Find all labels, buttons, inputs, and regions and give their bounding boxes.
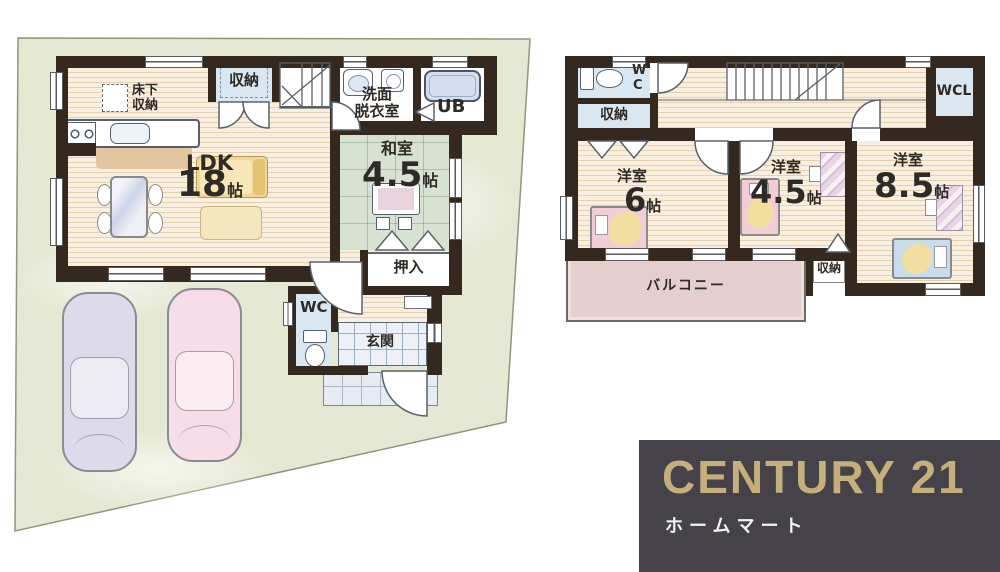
room-label-wcl: WCL [933, 84, 975, 99]
stove-icon [66, 122, 96, 145]
window [925, 283, 961, 296]
door-opening [650, 63, 658, 93]
logo-brand-text: CENTURY 21 [662, 450, 966, 504]
window [427, 323, 442, 343]
room-label-underfloor-2: 収納 [132, 99, 158, 113]
rug-icon [200, 206, 262, 240]
car-icon [62, 292, 137, 472]
room-label-ub: UB [437, 98, 465, 117]
wall-segment [845, 283, 985, 296]
blanket [902, 244, 932, 274]
room-size-washitsu: 4.5帖 [362, 158, 438, 194]
desk-icon [820, 152, 846, 197]
car-hood [179, 425, 230, 453]
window [692, 248, 726, 261]
wall-segment [208, 56, 216, 102]
room-label-storage-1f: 収納 [216, 73, 272, 89]
window [449, 158, 462, 198]
wall-segment [288, 366, 368, 375]
floorplan-canvas: 収納 床下 収納 洗面 脱衣室 UB LDK 18帖 和室 4.5帖 押入 WC… [0, 0, 1000, 572]
entrance-porch [323, 372, 438, 406]
size-unit: 帖 [646, 197, 661, 215]
window [560, 196, 573, 240]
shoe-cabinet-icon [404, 296, 432, 309]
car-hood [74, 434, 125, 463]
door-opening [852, 128, 880, 141]
window [343, 56, 367, 68]
stairs-area-2f [727, 63, 843, 100]
size-number: 8.5 [874, 166, 934, 206]
logo-sub-text: ホームマート [665, 512, 808, 538]
pillow [934, 246, 947, 268]
car-icon [167, 288, 242, 462]
wall-segment [331, 286, 338, 332]
sofa-arm [253, 159, 265, 195]
room-label-wc-1f: WC [300, 300, 328, 316]
room-size-bedroom85: 8.5帖 [874, 169, 949, 205]
room-label-underfloor-1: 床下 [132, 84, 158, 98]
bed-icon [892, 238, 952, 279]
door-opening [695, 128, 773, 141]
room-label-wc-2f-w: W [632, 64, 646, 78]
chair-icon [148, 184, 163, 206]
toilet-tank-icon [303, 330, 327, 343]
toilet-tank-icon [580, 67, 594, 90]
window [190, 267, 266, 281]
room-label-storage-2fb: 収納 [811, 262, 847, 275]
kitchen-sink-icon [110, 123, 150, 144]
bathtub-inner [429, 75, 476, 97]
window [283, 302, 293, 326]
wall-segment [56, 143, 96, 156]
room-size-ldk: 18帖 [177, 166, 243, 204]
window [752, 248, 796, 261]
wall-segment [728, 133, 740, 248]
room-label-washroom-1: 洗面 [338, 87, 416, 103]
wall-segment [578, 98, 650, 104]
room-label-balcony: バルコニー [566, 279, 806, 294]
size-unit: 帖 [227, 181, 243, 200]
wall-segment [272, 56, 280, 102]
window [432, 56, 468, 68]
size-number: 6 [624, 181, 646, 219]
toilet-bowl-icon [305, 344, 325, 367]
century21-logo: CENTURY 21 ホームマート [639, 440, 1000, 572]
chair-icon [148, 212, 163, 234]
window [50, 178, 63, 246]
toilet-bowl-icon [596, 69, 623, 88]
room-label-storage-2fa: 収納 [578, 108, 650, 123]
size-unit: 帖 [934, 183, 949, 201]
wall-segment [288, 286, 296, 374]
window [905, 56, 931, 68]
room-label-wc-2f-c: C [633, 79, 643, 93]
room-label-genkan: 玄関 [366, 335, 394, 350]
window [108, 267, 164, 281]
size-number: 4.5 [362, 155, 422, 195]
wall-segment [330, 121, 497, 135]
stairs-area-1f [280, 63, 330, 108]
dining-table-icon [110, 176, 148, 238]
window [605, 248, 649, 261]
room-size-bedroom6: 6帖 [624, 184, 661, 218]
window [449, 202, 462, 240]
size-number: 4.5 [750, 173, 807, 211]
car-roof [175, 351, 233, 411]
car-roof [70, 357, 128, 419]
wall-segment [565, 128, 985, 141]
wall-segment [360, 286, 462, 295]
size-number: 18 [177, 164, 227, 205]
size-unit: 帖 [807, 189, 822, 207]
size-unit: 帖 [422, 171, 438, 190]
room-label-oshiire: 押入 [368, 260, 449, 276]
window [145, 56, 203, 68]
cushion-icon [376, 217, 390, 230]
window [50, 72, 63, 110]
underfloor-storage-icon [102, 84, 128, 112]
pillow [595, 215, 608, 235]
room-label-washroom-2: 脱衣室 [338, 104, 416, 120]
room-size-bedroom45: 4.5帖 [750, 176, 822, 210]
cushion-icon [398, 217, 412, 230]
wall-segment [926, 116, 985, 128]
window [973, 185, 985, 243]
